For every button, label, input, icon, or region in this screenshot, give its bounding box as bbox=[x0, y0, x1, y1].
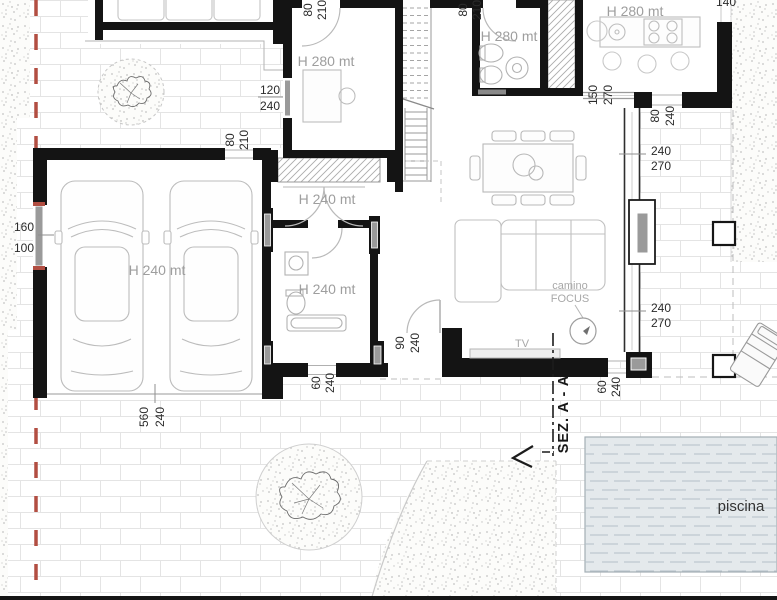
dim-kitchen-opening-h: 240 bbox=[663, 106, 677, 126]
tree-south bbox=[256, 444, 362, 550]
dim-entry-door-h: 240 bbox=[408, 333, 422, 353]
dim-bath-door-h: 210 bbox=[470, 0, 484, 20]
gravel-strip-topleft bbox=[0, 0, 30, 118]
dim-east-window-lower-w: 240 bbox=[651, 301, 671, 315]
dim-east-window-upper-w: 240 bbox=[651, 144, 671, 158]
gravel-strip-left-lower bbox=[0, 330, 8, 600]
pool-label: piscina bbox=[718, 498, 765, 515]
room-label-laundry: H 240 mt bbox=[299, 281, 356, 297]
car-left bbox=[55, 181, 149, 391]
tree-north bbox=[98, 59, 164, 125]
dim-entry-door-w: 90 bbox=[393, 336, 407, 350]
dim-laundry-door-h: 240 bbox=[323, 373, 337, 393]
dim-garage-window-w: 160 bbox=[14, 220, 34, 234]
floor-plan-canvas: H 280 mt H 280 mt H 280 mt H 240 mt H 24… bbox=[0, 0, 777, 600]
study-window-glazing bbox=[285, 80, 291, 116]
room-label-kitchen: H 280 mt bbox=[607, 3, 664, 19]
entry-grate bbox=[278, 158, 380, 182]
room-label-study: H 280 mt bbox=[298, 53, 355, 69]
dim-bath-door-w: 80 bbox=[456, 3, 470, 17]
tv-label: TV bbox=[515, 338, 530, 350]
dim-laundry-door-w: 60 bbox=[309, 376, 323, 390]
room-label-bathroom: H 280 mt bbox=[481, 28, 538, 44]
dim-study-door-w: 80 bbox=[301, 3, 315, 17]
dim-garage-window-h: 100 bbox=[14, 241, 34, 255]
bottom-border bbox=[0, 596, 777, 600]
dim-north-window-h: 270 bbox=[601, 85, 615, 105]
dim-garage-side-door-h: 210 bbox=[237, 130, 251, 150]
shower bbox=[548, 0, 575, 90]
tv-cabinet bbox=[470, 349, 560, 358]
dim-south-window-h: 240 bbox=[609, 377, 623, 397]
section-label: SEZ. A - A bbox=[556, 375, 572, 453]
fireplace-label-1: camino bbox=[552, 280, 587, 292]
dim-garage-side-door-w: 80 bbox=[223, 133, 237, 147]
dim-garage-door-h: 240 bbox=[153, 407, 167, 427]
gravel-strip-right bbox=[731, 0, 777, 262]
room-label-garage: H 240 mt bbox=[129, 262, 186, 278]
dim-study-window-w: 120 bbox=[260, 83, 280, 97]
garage-window-glazing bbox=[35, 206, 43, 266]
dim-garage-door-w: 560 bbox=[137, 407, 151, 427]
pergola-post-upper bbox=[713, 222, 735, 245]
dim-south-window-w: 60 bbox=[595, 380, 609, 394]
bath-sill bbox=[478, 90, 506, 95]
dim-study-door-h: 210 bbox=[315, 0, 329, 20]
dim-east-window-lower-h: 270 bbox=[651, 316, 671, 330]
floor-plan: H 280 mt H 280 mt H 280 mt H 240 mt H 24… bbox=[0, 0, 777, 600]
car-right bbox=[164, 181, 258, 391]
fireplace-label-2: FOCUS bbox=[551, 293, 590, 305]
dim-wall-top: 140 bbox=[716, 0, 736, 9]
dim-east-window-upper-h: 270 bbox=[651, 159, 671, 173]
dim-north-window-w: 150 bbox=[586, 85, 600, 105]
dim-study-window-h: 240 bbox=[260, 99, 280, 113]
room-label-hallway: H 240 mt bbox=[299, 191, 356, 207]
dim-kitchen-opening-w: 80 bbox=[648, 109, 662, 123]
